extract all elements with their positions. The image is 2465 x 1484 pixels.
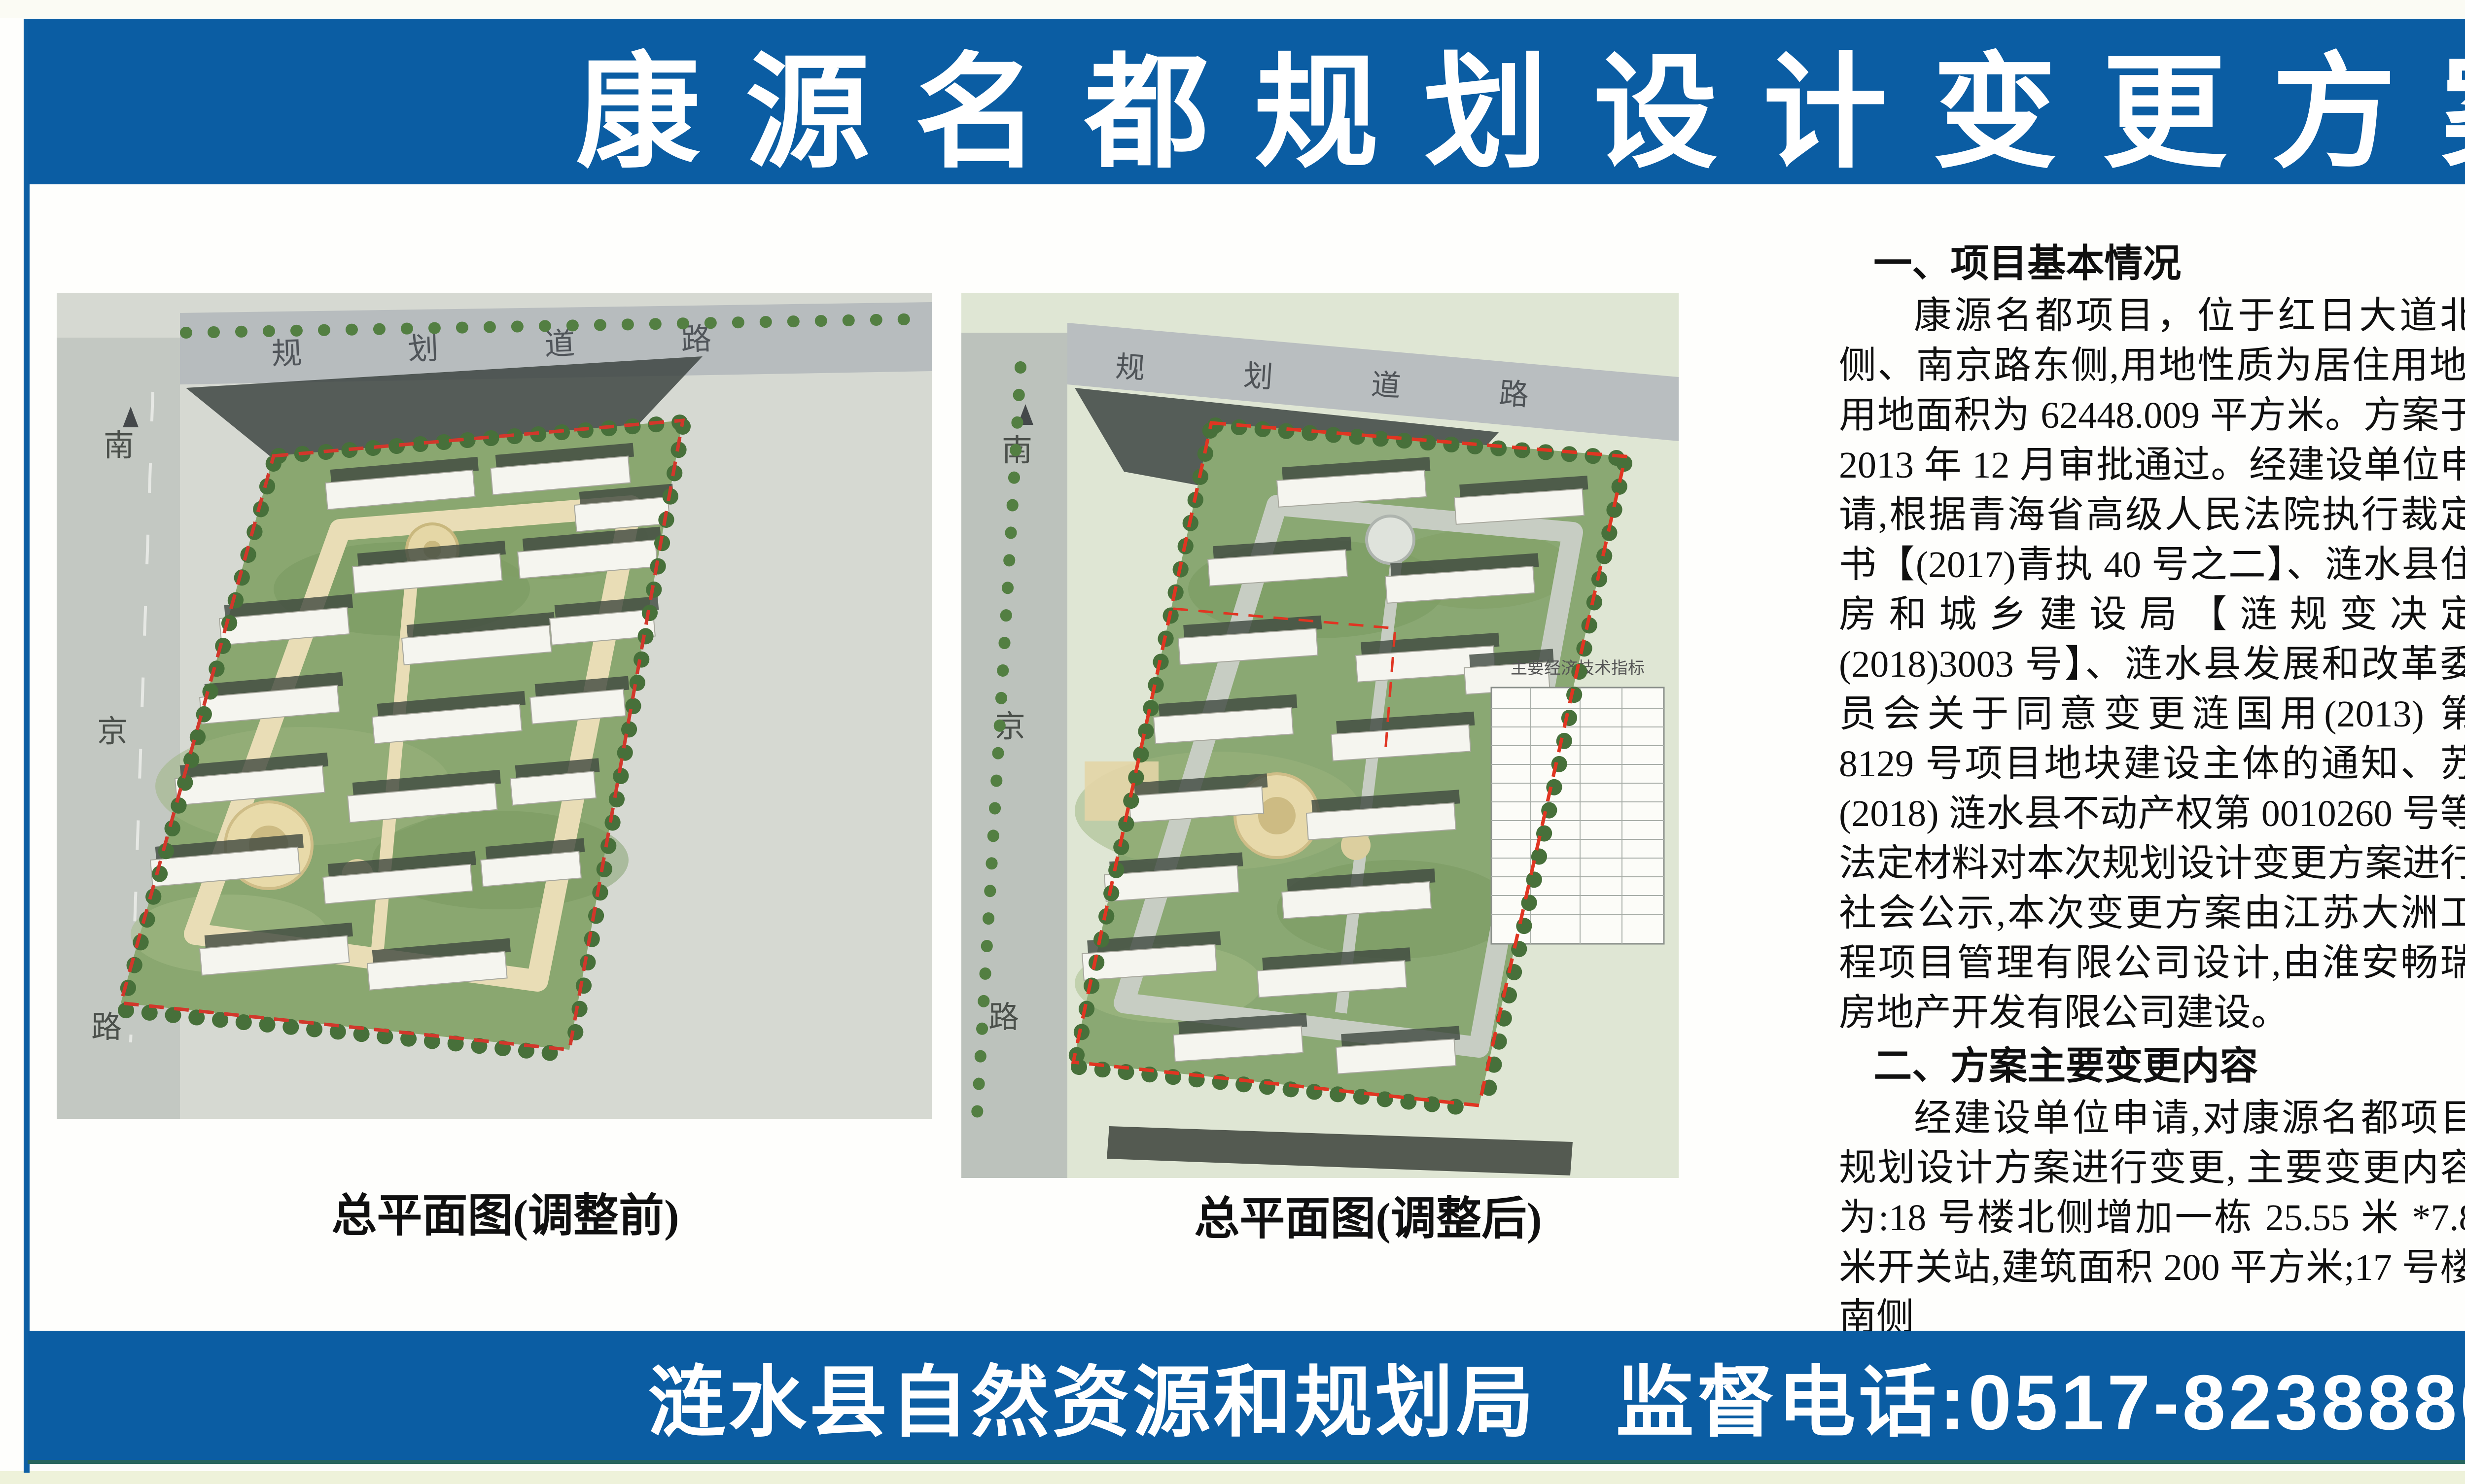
site-plan-after-drawing: 规划道路 南 京 路: [961, 293, 1679, 1178]
caption-plan-after: 总平面图(调整后): [1087, 1182, 1649, 1247]
title-banner: 康源名都规划设计变更方案批前公示: [28, 19, 2465, 184]
paragraph: 经建设单位申请,对康源名都项目规划设计方案进行变更, 主要变更内容为:18 号楼…: [1839, 1094, 2465, 1343]
page-title: 康源名都规划设计变更方案批前公示: [576, 12, 2465, 192]
road-west-label-3: 路: [988, 1001, 1019, 1035]
agency-name: 涟水县自然资源和规划局: [648, 1339, 1537, 1452]
caption-plan-before: 总平面图(调整前): [224, 1179, 786, 1244]
left-border-rule: [24, 19, 30, 1473]
section-heading: 二、方案主要变更内容: [1839, 1041, 2465, 1091]
notice-body: 一、项目基本情况 康源名都项目，位于红日大道北侧、南京路东侧,用地性质为居住用地…: [1839, 236, 2465, 1343]
road-west-label-3: 路: [91, 1010, 122, 1044]
page-edge-bottom: [0, 1471, 2465, 1484]
road-west-label-1: 南: [104, 429, 134, 463]
section-heading: 一、项目基本情况: [1839, 239, 2465, 288]
public-notice-page: 康源名都规划设计变更方案批前公示 规划道路 南 京 路: [0, 0, 2465, 1484]
footer-banner: 涟水县自然资源和规划局 监督电话:0517-82388806、0517-8238…: [28, 1331, 2465, 1464]
entry-roundabout: [1367, 516, 1414, 563]
supervision-phone: 监督电话:0517-82388806、0517-82380262: [1616, 1339, 2465, 1452]
site-plan-before-drawing: 规划道路 南 京 路: [57, 293, 932, 1119]
site-plan-after: 规划道路 南 京 路: [961, 293, 1679, 1178]
road-west-label-2: 京: [97, 715, 128, 749]
site-plan-before: 规划道路 南 京 路: [57, 293, 932, 1119]
paragraph: 康源名都项目，位于红日大道北侧、南京路东侧,用地性质为居住用地,用地面积为 62…: [1839, 291, 2465, 1038]
text-column-1: 一、项目基本情况 康源名都项目，位于红日大道北侧、南京路东侧,用地性质为居住用地…: [1839, 236, 2465, 1343]
